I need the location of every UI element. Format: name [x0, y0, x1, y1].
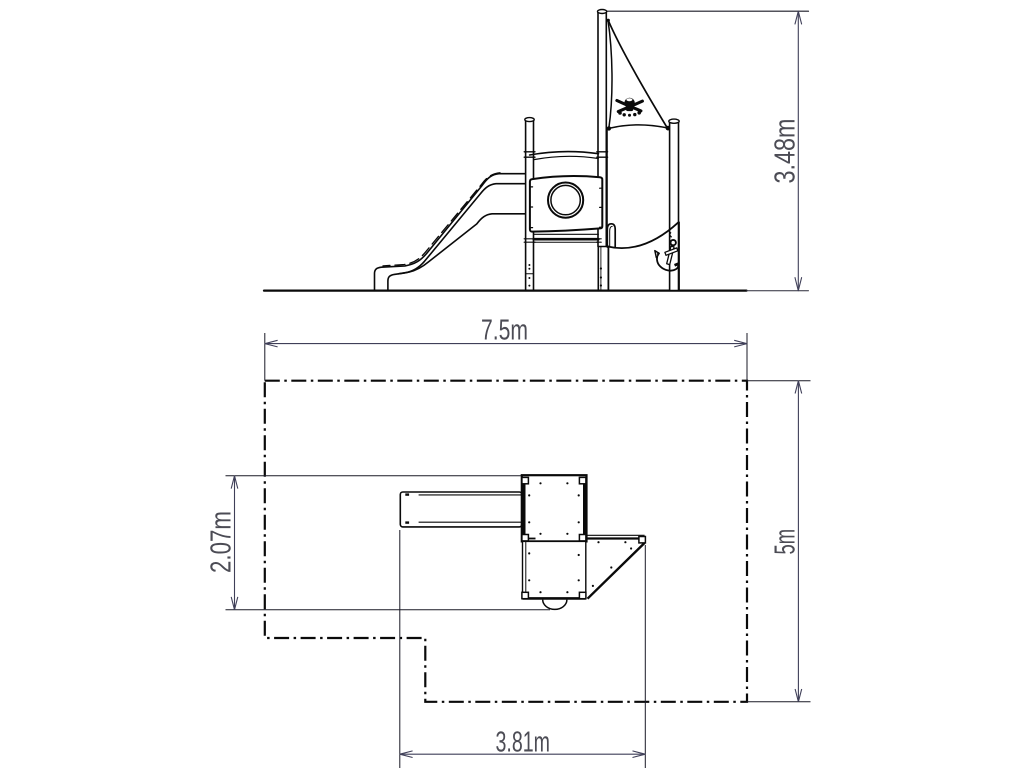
svg-text:2.07m: 2.07m — [206, 511, 238, 573]
svg-text:3.48m: 3.48m — [769, 119, 801, 184]
svg-text:5m: 5m — [770, 529, 802, 555]
svg-text:7.5m: 7.5m — [481, 314, 528, 346]
svg-text:3.81m: 3.81m — [496, 726, 551, 758]
